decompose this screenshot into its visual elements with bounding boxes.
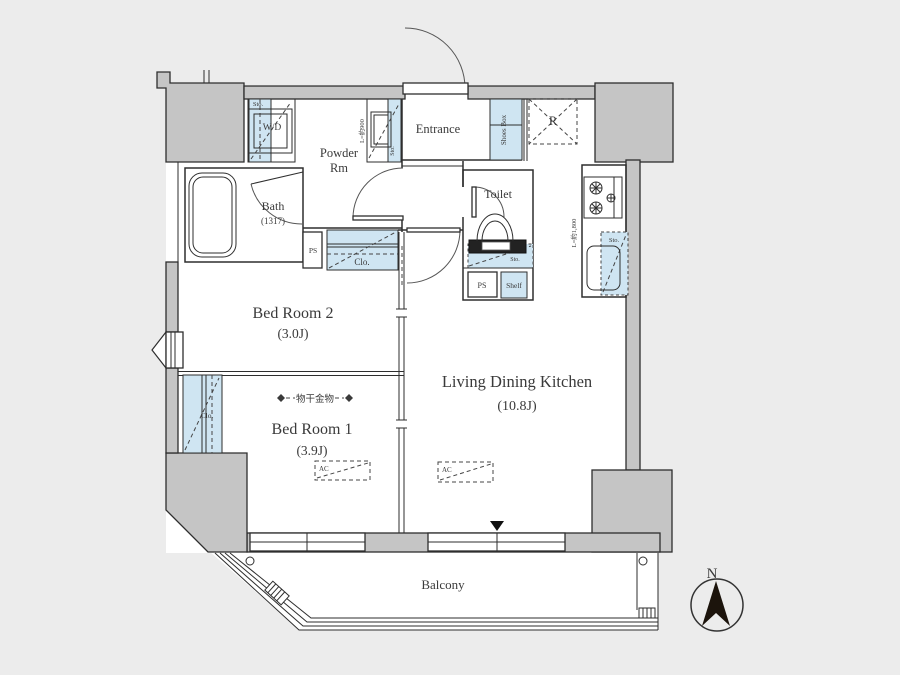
floor-plan-drawing: Bed Room 2 (3.0J) Bed Room 1 (3.9J) Livi… [0, 0, 900, 675]
panel-joint [396, 309, 407, 317]
label-ac-bedroom1: AC [319, 465, 329, 473]
floor-plan-page: Bed Room 2 (3.0J) Bed Room 1 (3.9J) Livi… [0, 0, 900, 675]
label-laundry-hardware: 物干金物 [296, 393, 335, 405]
label-storage-kitchen: Sto. [609, 237, 620, 244]
compass [691, 579, 743, 631]
label-powder-line1: Powder [320, 146, 359, 160]
entrance-door-arc [405, 28, 465, 88]
wall-top-band-left [244, 86, 405, 99]
bedroom2-closet-strip [303, 230, 398, 270]
label-storage-vanity: Sto. [390, 146, 396, 156]
label-ac-ldk: AC [442, 466, 452, 474]
powder-door-leaf [353, 216, 403, 220]
label-washer-dryer: W/D [263, 123, 282, 133]
wall-top-band-right [468, 86, 595, 99]
label-toilet: Toilet [484, 187, 512, 201]
label-pipe-space-toilet: PS [478, 281, 487, 290]
label-pipe-space-powder: PS [309, 246, 317, 255]
label-refrigerator: R [549, 114, 558, 128]
left-bay-window [152, 332, 183, 368]
toilet-door-leaf [472, 187, 476, 217]
stove-burner-small [607, 194, 615, 202]
ldk-door-leaf [407, 228, 460, 232]
wall-left-strip-upper [166, 262, 178, 332]
label-closet-bedroom1: Clo. [201, 411, 214, 420]
stove-burner [590, 182, 602, 194]
label-entrance: Entrance [416, 122, 461, 136]
stove-burner [590, 202, 602, 214]
label-bedroom2-name: Bed Room 2 [253, 305, 334, 322]
label-bath-size: (1317) [261, 216, 285, 226]
label-balcony: Balcony [421, 577, 465, 592]
label-shoes-box: Shoes Box [500, 114, 508, 145]
entrance-door [403, 28, 468, 94]
wall-right-strip [626, 160, 640, 470]
label-bath-name: Bath [262, 199, 285, 213]
north-arrow-icon [702, 581, 730, 626]
label-storage-wd: Sto. [253, 101, 264, 108]
wall-pillar-top-left [157, 72, 244, 162]
wall-pillar-top-right [595, 83, 673, 162]
panel-joint [396, 420, 407, 428]
label-powder-line2: Rm [330, 161, 348, 175]
label-compass-north: N [707, 566, 718, 582]
label-kitchen-length: L=約1,800 [569, 219, 578, 248]
label-bedroom1-name: Bed Room 1 [272, 421, 353, 438]
toilet-tank-lid [482, 242, 510, 250]
label-storage-toilet: Sto. [510, 257, 520, 263]
label-closet-bedroom2: Clo. [354, 257, 369, 267]
entrance-door-leaf [403, 83, 468, 94]
wall-left-strip-lower [166, 368, 178, 453]
label-vanity-length: L=約900 [357, 119, 366, 143]
bay-window-triangle [152, 332, 166, 368]
label-ldk-size: (10.8J) [497, 399, 537, 414]
drain-grate-icon [639, 608, 655, 618]
label-bedroom2-size: (3.0J) [277, 326, 308, 341]
label-ldk-name: Living Dining Kitchen [442, 372, 592, 391]
label-shelf: Shelf [506, 281, 522, 290]
label-bedroom1-size: (3.9J) [296, 443, 327, 458]
